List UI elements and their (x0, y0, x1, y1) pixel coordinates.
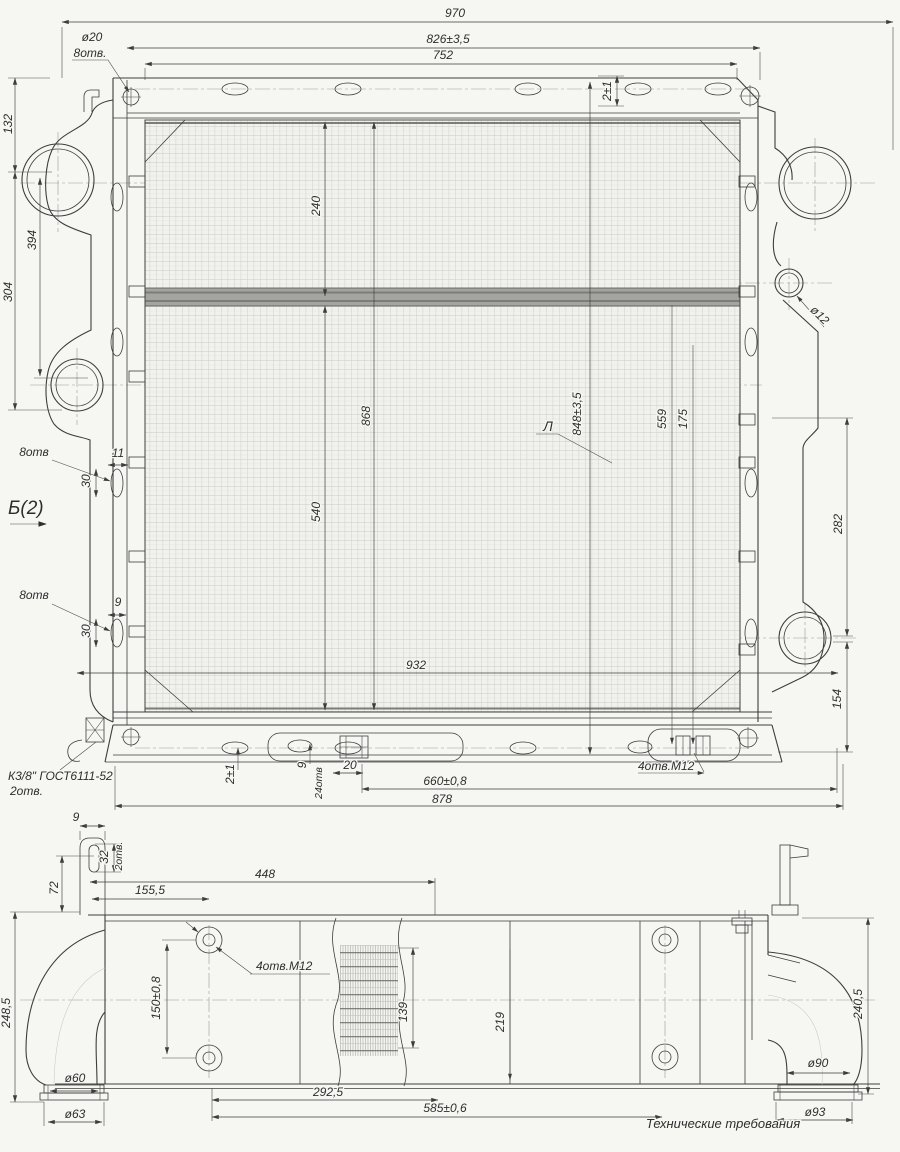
drawing-sheet: 970 826±3,5 752 ø20 8отв. 2±1 132 394 30… (0, 0, 900, 1152)
dim-label-d63: ø63 (65, 1107, 86, 1121)
dim-label-175: 175 (676, 409, 690, 429)
dim-label-9-bottom: 9 (295, 761, 309, 768)
dim-label-11: 11 (112, 446, 124, 460)
bolt-holes-label-side: 4отв.М12 (256, 959, 313, 973)
dim-label-848: 848±3,5 (570, 392, 584, 436)
tech-requirements-note: Технические требования (646, 1116, 800, 1131)
dim-label-219: 219 (493, 1012, 507, 1033)
lifting-hook (84, 90, 99, 112)
dim-label-139: 139 (396, 1002, 410, 1022)
dim-label-d12: ø12 (808, 303, 833, 328)
dim-label-282: 282 (831, 514, 845, 535)
side-view: 9 32 2отв. 72 155,5 448 4отв.М12 150±0,8… (0, 810, 880, 1131)
dim-label-8otv-lower: 8отв (19, 588, 49, 602)
dim-label-240: 240,5 (851, 989, 865, 1020)
dim-label-20: 20 (342, 758, 357, 772)
view-label-b2: Б(2) (8, 498, 44, 519)
dim-label-132: 132 (1, 114, 15, 134)
dim-label-559: 559 (655, 409, 669, 429)
side-right-bracket (772, 845, 808, 915)
side-mount-holes (196, 927, 678, 1071)
dim-label-868: 868 (359, 406, 373, 426)
dim-label-2otv-side: 2отв. (113, 842, 125, 872)
dim-label-878: 878 (432, 792, 452, 806)
side-labels: 9 32 2отв. 72 155,5 448 4отв.М12 150±0,8… (0, 810, 865, 1131)
dim-label-8otv-top: 8отв. (74, 46, 107, 60)
dim-label-30-upper: 30 (79, 474, 93, 488)
dim-label-d20: ø20 (82, 30, 103, 44)
side-bolt (732, 910, 752, 933)
dim-label-970: 970 (445, 6, 465, 20)
dim-label-d90: ø90 (808, 1056, 829, 1070)
core-middle-band (145, 288, 740, 306)
dim-label-448: 448 (255, 867, 275, 881)
dim-label-8otv-upper: 8отв (19, 445, 49, 459)
dim-label-2-1-top: 2±1 (600, 81, 614, 102)
side-left-bracket (80, 838, 105, 915)
side-structure (26, 838, 880, 1100)
bolt-holes-label-front: 4отв.М12 (638, 759, 695, 773)
dim-label-932: 932 (406, 658, 426, 672)
dim-label-826: 826±3,5 (426, 32, 470, 46)
dim-label-585: 585±0,6 (423, 1101, 467, 1115)
right-tank-outline (758, 106, 824, 692)
radiator-technical-drawing: 970 826±3,5 752 ø20 8отв. 2±1 132 394 30… (0, 0, 900, 1152)
drain-fitting (68, 718, 104, 761)
dim-label-540: 540 (309, 502, 323, 522)
dim-label-752: 752 (433, 48, 453, 62)
front-core (145, 120, 740, 712)
dim-label-304: 304 (1, 282, 15, 302)
side-dimensions (10, 826, 874, 1126)
front-view: 970 826±3,5 752 ø20 8отв. 2±1 132 394 30… (1, 6, 893, 810)
right-bolts (739, 176, 755, 655)
dim-label-292: 292,5 (312, 1085, 343, 1099)
dim-label-72: 72 (47, 881, 61, 895)
dim-label-155: 155,5 (135, 883, 165, 897)
detail-label-L: Л (542, 418, 553, 434)
dim-label-s9: 9 (73, 810, 80, 824)
dim-label-154: 154 (830, 689, 844, 709)
bottom-brackets (268, 729, 740, 761)
dim-label-32: 32 (97, 850, 111, 864)
left-bolts (129, 176, 145, 637)
dim-label-248: 248,5 (0, 998, 13, 1029)
dim-label-9-left: 9 (115, 595, 122, 609)
dim-label-d60: ø60 (65, 1071, 86, 1085)
dim-label-394: 394 (25, 230, 39, 250)
dim-label-d93: ø93 (805, 1105, 826, 1119)
dim-label-2-1-bottom: 2±1 (223, 764, 237, 785)
dim-label-660: 660±0,8 (423, 774, 467, 788)
dim-label-150: 150±0,8 (149, 976, 163, 1020)
side-right-elbow (768, 952, 862, 1100)
dim-label-240: 240 (309, 196, 323, 217)
fitting-label: К3/8" ГОСТ6111-52 (8, 769, 113, 783)
dim-label-24otv: 24отв (313, 767, 325, 800)
dim-label-30-lower: 30 (79, 624, 93, 638)
fitting-holes-label: 2отв. (9, 784, 43, 798)
